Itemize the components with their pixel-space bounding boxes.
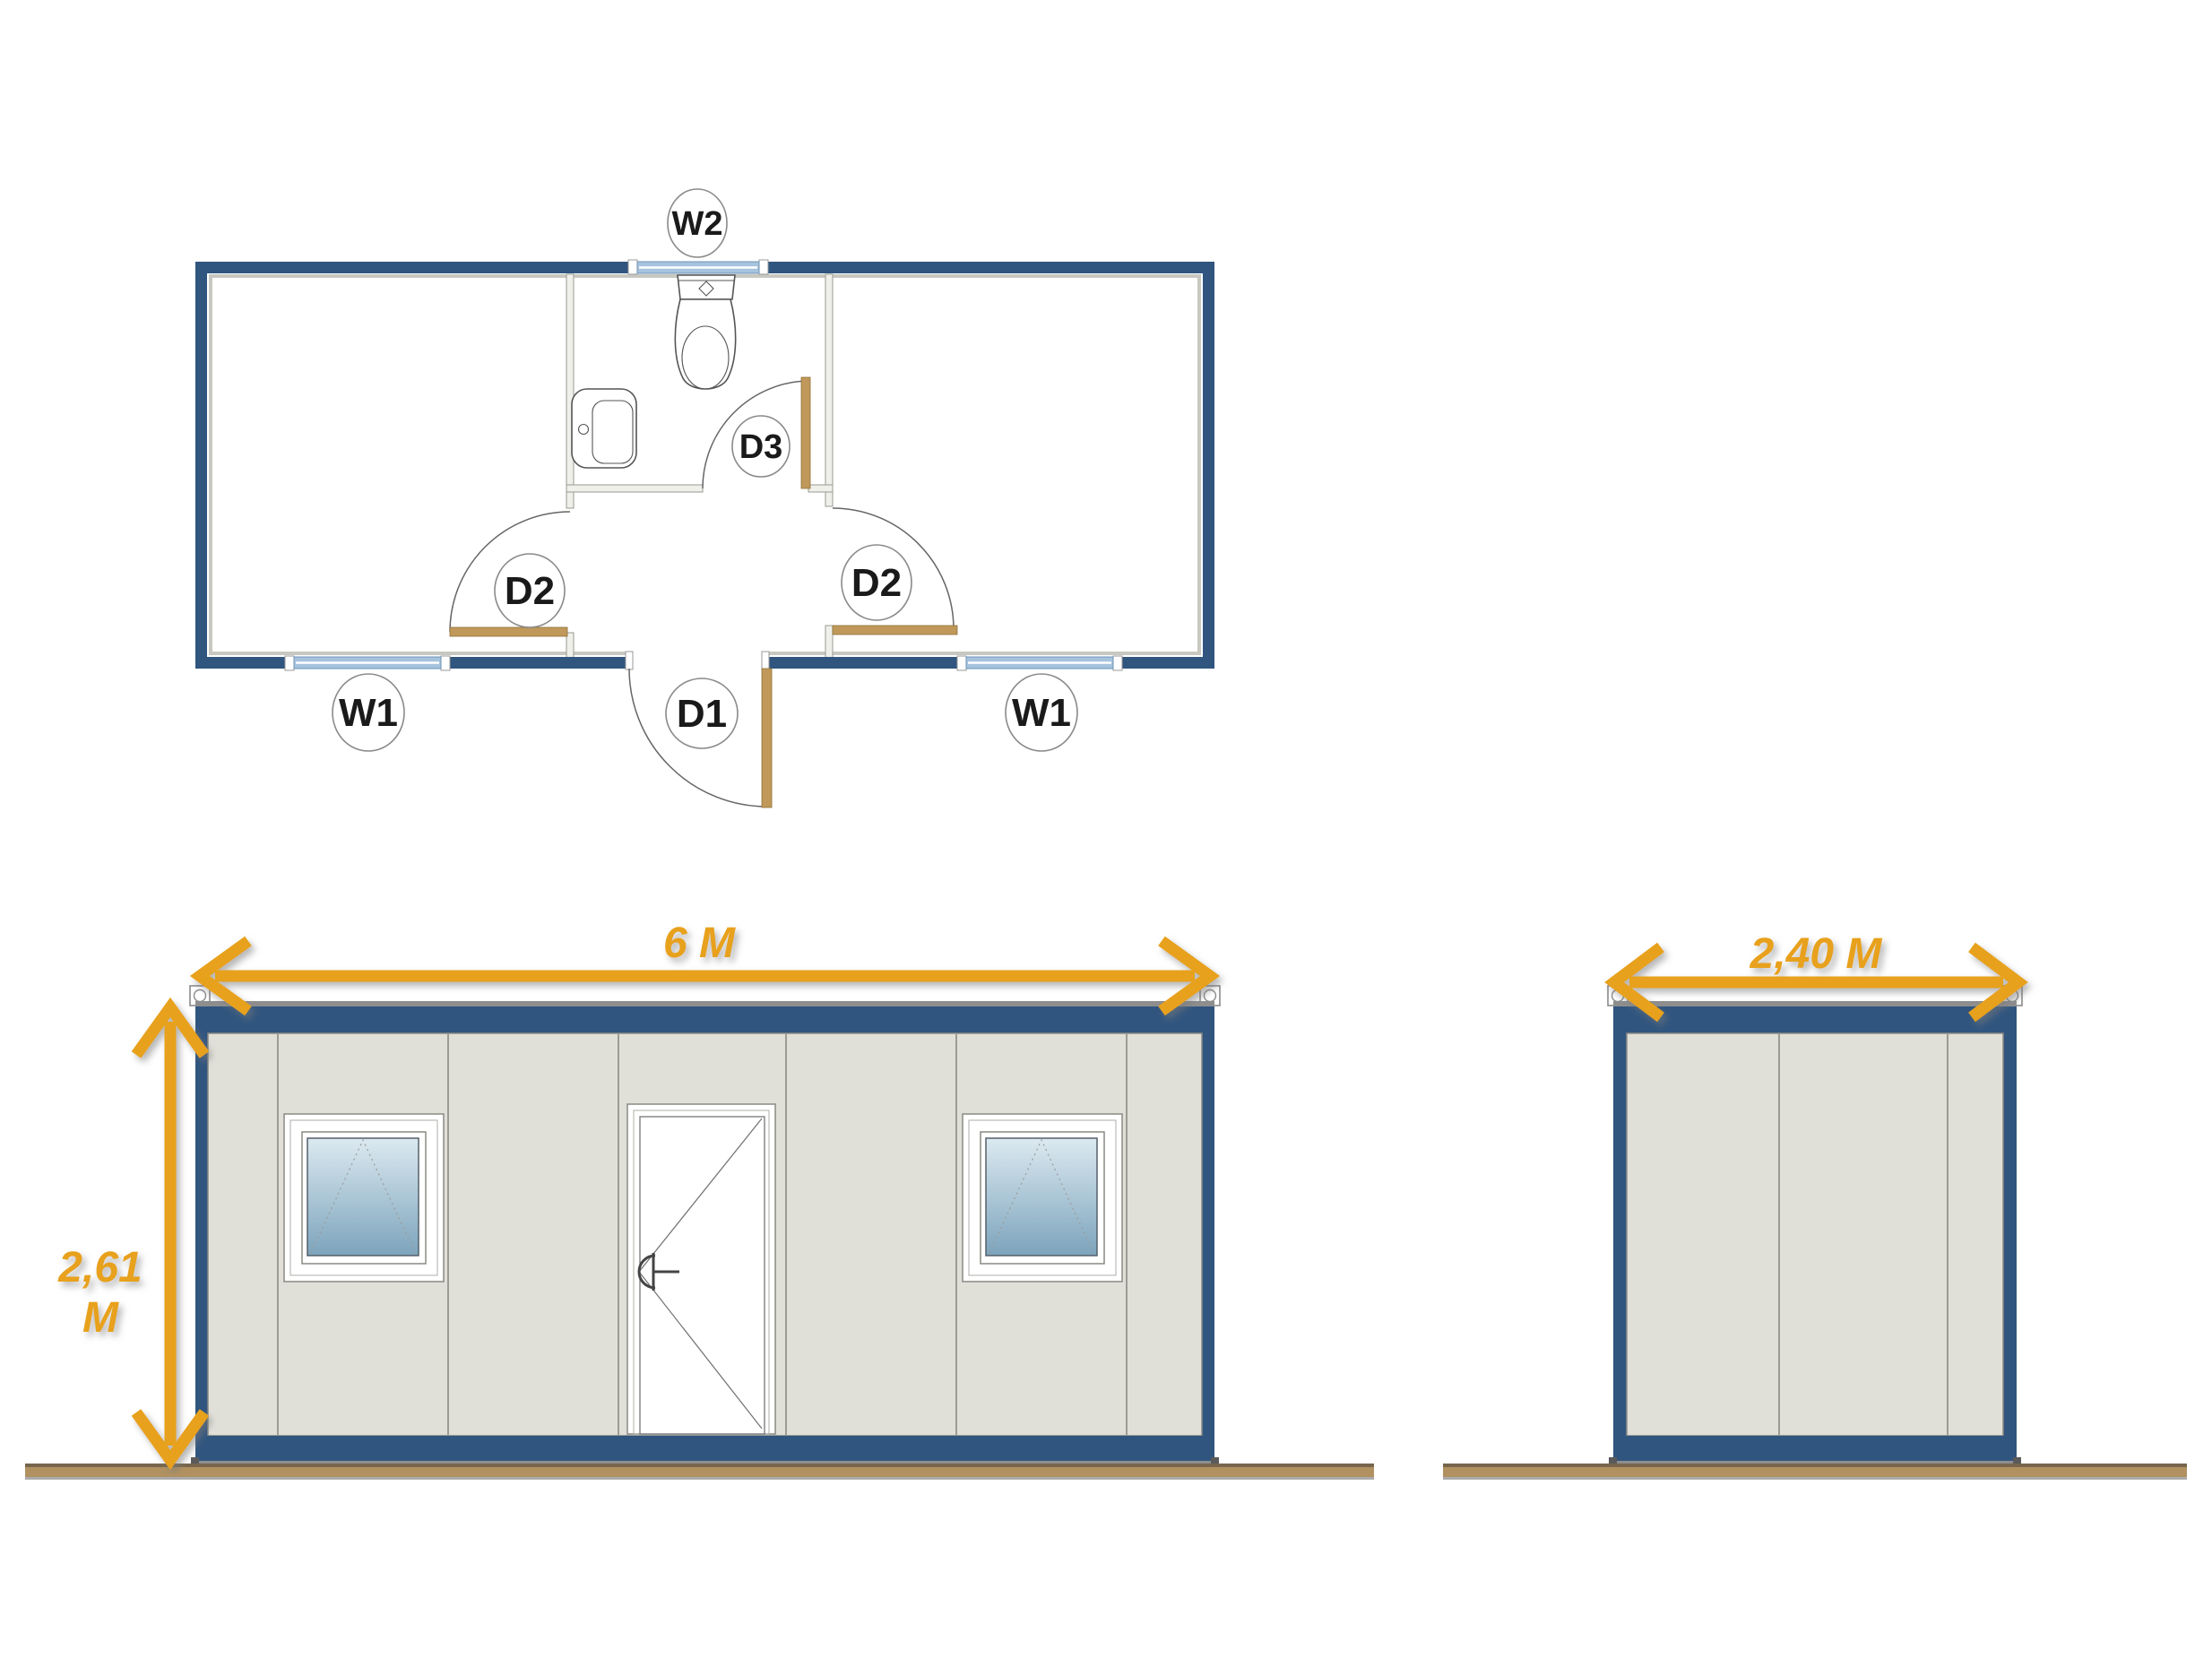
side-left-post — [1613, 1033, 1627, 1436]
front-door — [627, 1104, 775, 1434]
label-w2-text: W2 — [672, 205, 723, 243]
window-glass — [986, 1138, 1097, 1256]
bathroom-wall-south-stub — [808, 485, 833, 492]
side-roof-edge — [1613, 1001, 2017, 1006]
window-jamb — [759, 260, 768, 274]
ground-top-edge — [1443, 1464, 2187, 1467]
front-top-rail — [195, 1006, 1214, 1033]
side-right-post — [2003, 1033, 2017, 1436]
window-jamb — [1113, 656, 1122, 670]
dim-label-side-width: 2,40 M — [1750, 930, 1883, 978]
plan-wall-right — [1203, 262, 1214, 669]
window-jamb — [957, 656, 966, 670]
sink-icon — [572, 389, 636, 468]
door-leaf-d1 — [762, 669, 772, 807]
ground-left — [25, 1464, 1374, 1480]
dim-label-height-value: 2,61 — [57, 1244, 142, 1291]
front-left-post — [195, 1033, 208, 1436]
bathroom-wall-left — [566, 274, 574, 508]
plan-main-door-opening — [626, 650, 769, 670]
label-d1-text: D1 — [677, 692, 727, 736]
window-jamb — [441, 656, 450, 670]
bathroom-wall-right — [825, 274, 833, 506]
side-elevation — [1608, 986, 2022, 1466]
dim-label-front-width: 6 M — [663, 920, 736, 967]
label-w1-right-text: W1 — [1012, 691, 1071, 735]
ground-right — [1443, 1464, 2187, 1480]
floor-plan: W2 D3 D2 D2 W1 W1 D1 — [195, 189, 1214, 807]
hall-wall-stub-right — [825, 626, 833, 658]
side-bottom-rail — [1613, 1436, 2017, 1461]
dim-arrow-height — [136, 1007, 204, 1460]
door-leaf-d2-right — [833, 626, 957, 635]
toilet-icon — [675, 275, 735, 389]
dim-label-height-unit: M — [82, 1294, 119, 1342]
front-bottom-rail — [195, 1436, 1214, 1461]
plan-window-w1-right — [957, 656, 1122, 670]
plan-wall-left — [195, 262, 207, 669]
front-right-post — [1202, 1033, 1214, 1436]
window-jamb — [628, 260, 637, 274]
window-jamb — [285, 656, 294, 670]
bathroom-wall-south — [566, 485, 703, 492]
container-cabin-drawing: W2 D3 D2 D2 W1 W1 D1 — [0, 0, 2212, 1658]
ground-top-edge — [25, 1464, 1374, 1467]
front-roof-edge — [195, 1001, 1214, 1006]
label-d3-text: D3 — [739, 428, 783, 466]
plan-window-w1-left — [285, 656, 450, 670]
side-top-rail — [1613, 1006, 2017, 1033]
front-window-left — [284, 1114, 444, 1282]
label-d2-left-text: D2 — [505, 569, 555, 613]
ground-strip — [1443, 1467, 2187, 1477]
label-w1-left-text: W1 — [339, 691, 398, 735]
front-window-right — [963, 1114, 1122, 1282]
door-leaf — [640, 1117, 765, 1434]
door-leaf-d2-left — [450, 627, 567, 636]
door-leaf-d3 — [801, 377, 810, 488]
ground-strip — [25, 1467, 1374, 1477]
ground-bottom-edge — [25, 1477, 1374, 1480]
front-elevation — [190, 986, 1220, 1466]
label-d2-right-text: D2 — [851, 561, 902, 605]
window-glass — [307, 1138, 419, 1256]
door-opening-gap — [629, 650, 764, 670]
plan-window-w2 — [628, 260, 768, 274]
door-jamb — [626, 652, 633, 669]
door-jamb — [762, 652, 769, 669]
ground-bottom-edge — [1443, 1477, 2187, 1480]
